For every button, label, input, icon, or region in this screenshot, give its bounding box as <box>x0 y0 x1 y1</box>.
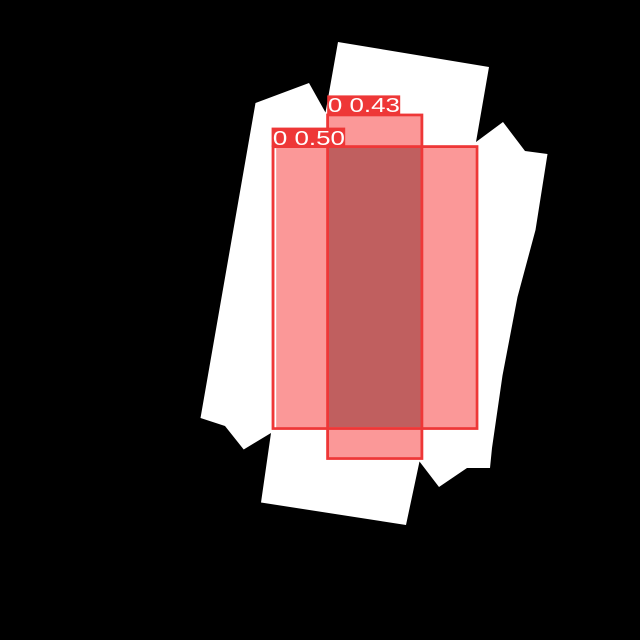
svg-text:0 0.50: 0 0.50 <box>273 127 345 150</box>
svg-text:0 0.43: 0 0.43 <box>328 94 400 117</box>
